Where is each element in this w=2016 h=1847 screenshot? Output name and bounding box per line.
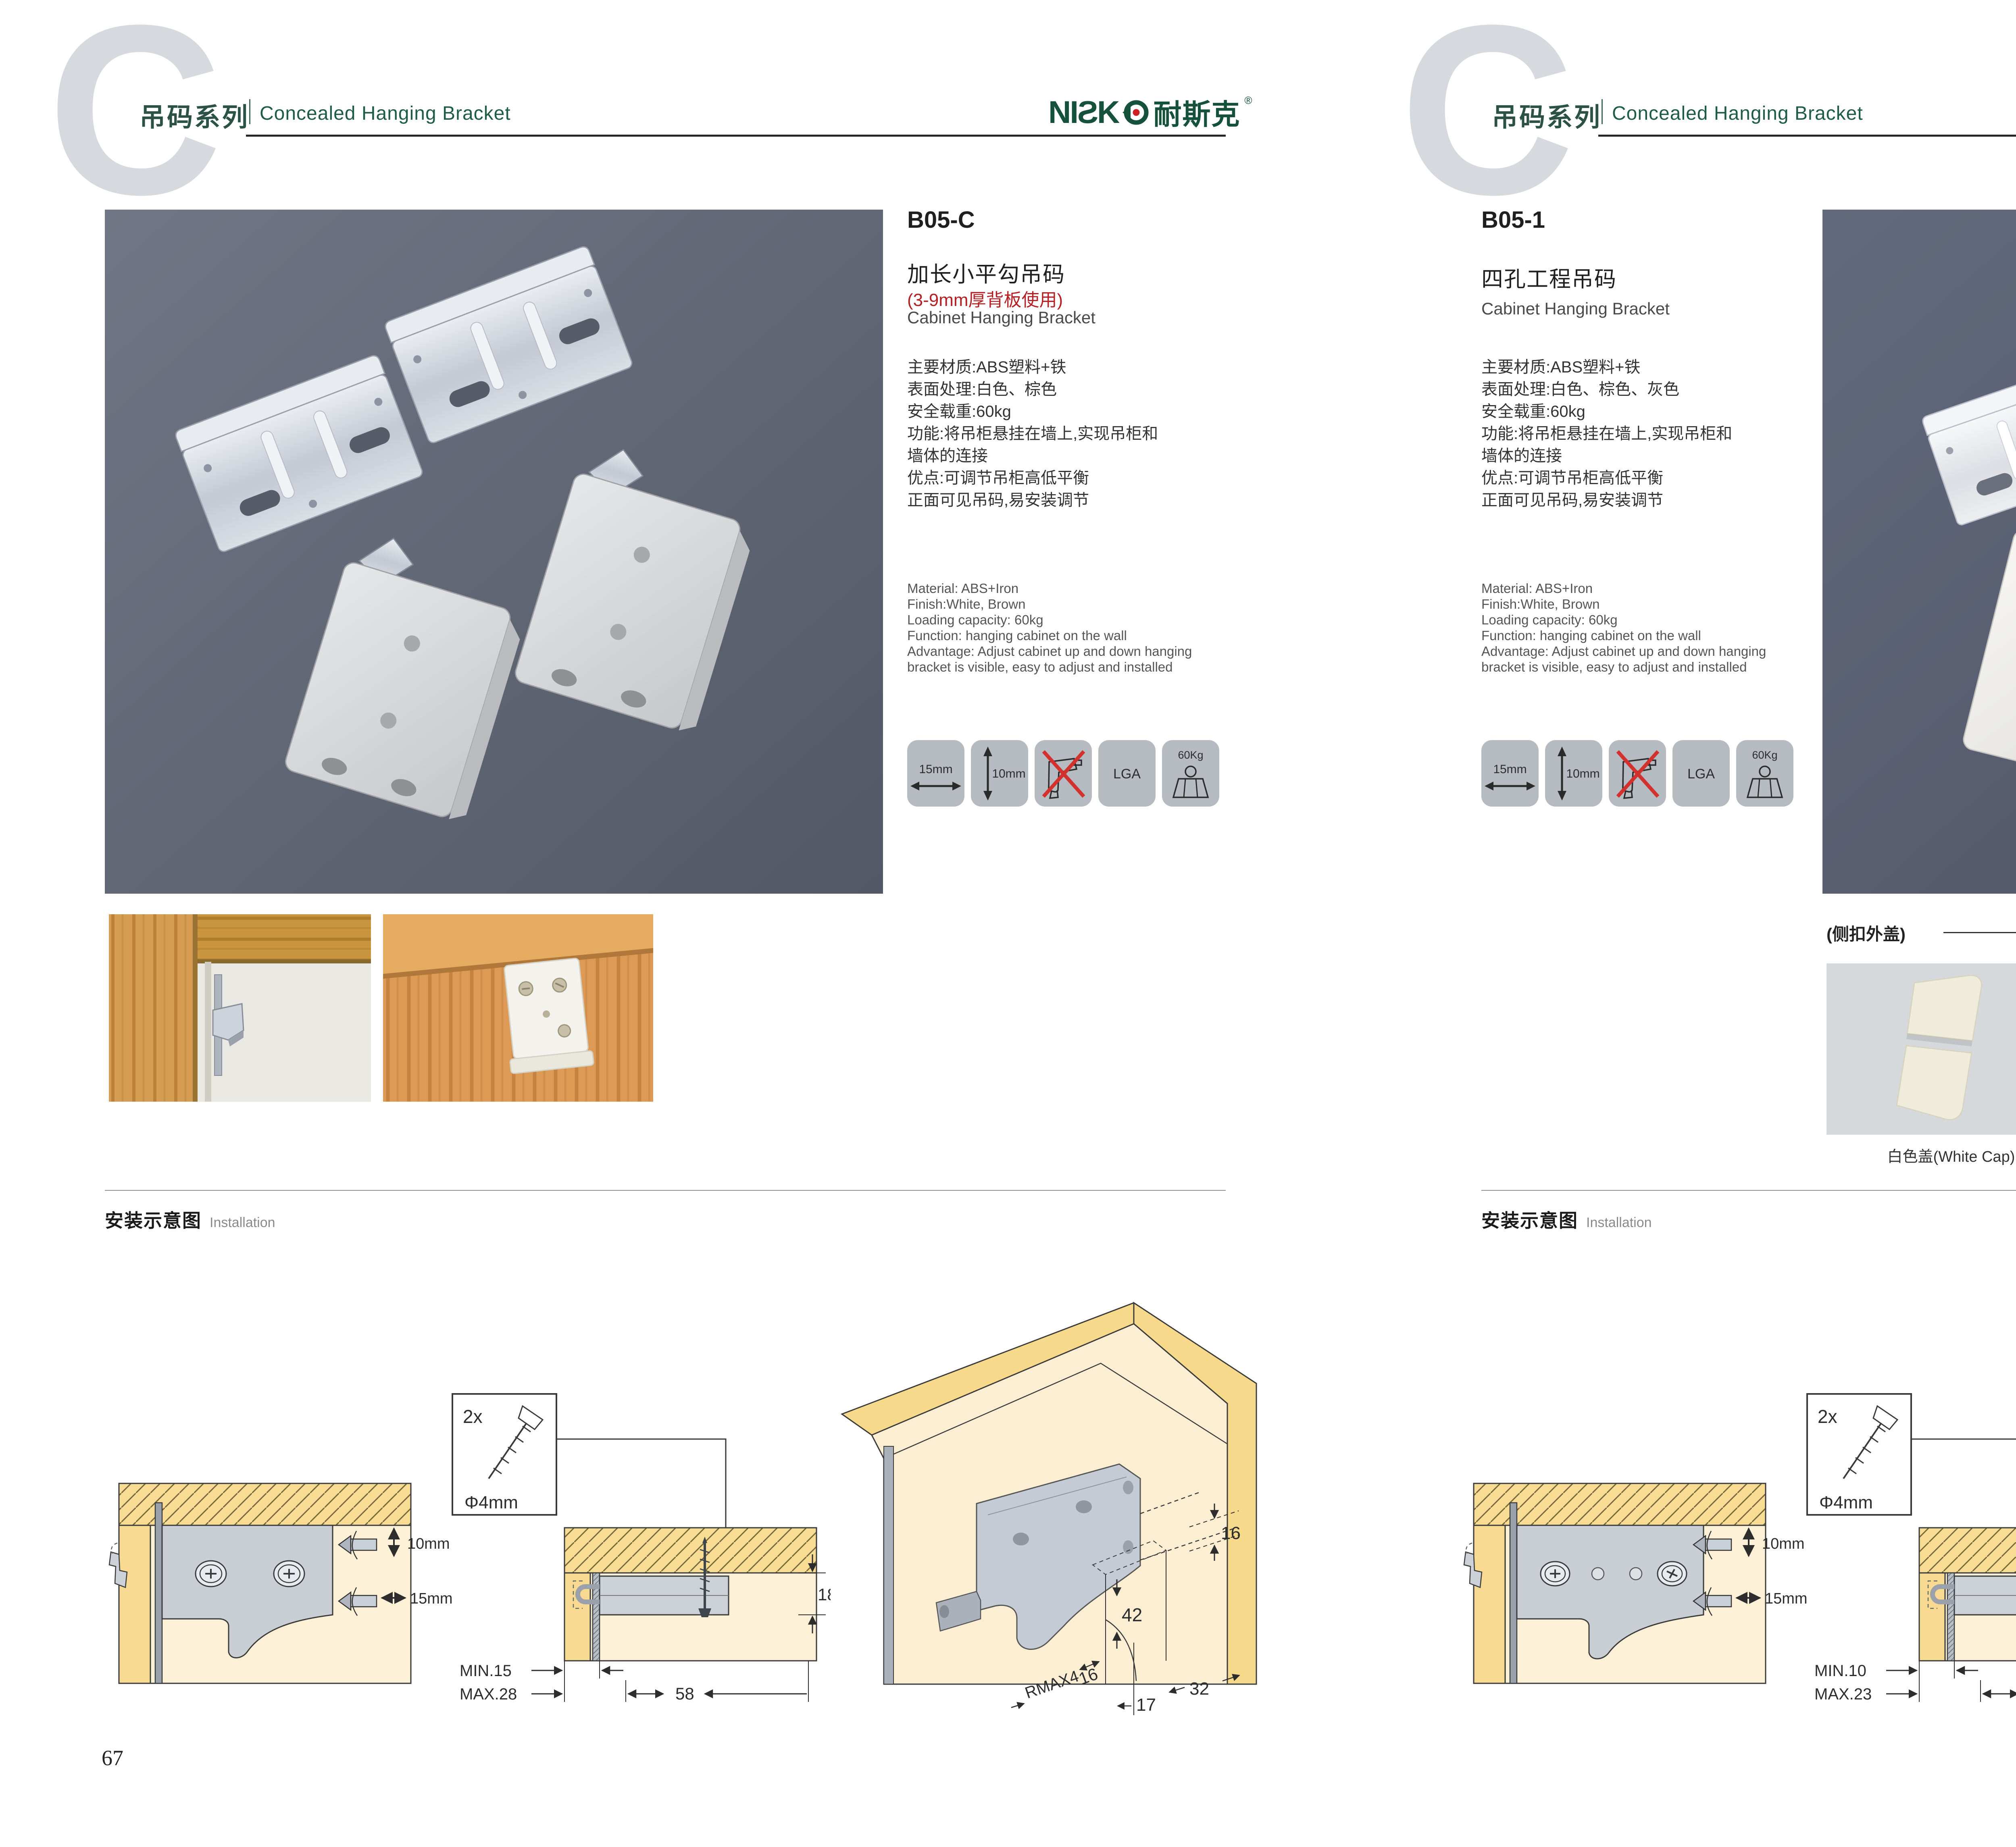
feature-icons: 15mm 10mm LGA 60Kg — [1481, 740, 1793, 807]
specs-english: Material: ABS+Iron Finish:White, Brown L… — [907, 580, 1192, 675]
brand-logo: NIƧK 耐斯克 ® — [1048, 92, 1252, 133]
svg-text:60Kg: 60Kg — [1752, 749, 1777, 761]
install-photo-bracket — [383, 914, 653, 1102]
spec-line: 功能:将吊柜悬挂在墙上,实现吊柜和 — [907, 423, 1158, 445]
installation-heading-zh: 安装示意图 — [1481, 1206, 1578, 1233]
product-title-en: Cabinet Hanging Bracket — [907, 308, 1095, 327]
no-drill-icon — [1609, 740, 1666, 807]
specs-chinese: 主要材质:ABS塑料+铁 表面处理:白色、棕色、灰色 安全载重:60kg 功能:… — [1481, 356, 1732, 512]
spec-line: Loading capacity: 60kg — [907, 612, 1192, 628]
spec-line: bracket is visible, easy to adjust and i… — [907, 659, 1192, 675]
header-divider — [249, 99, 250, 124]
header-rule — [1598, 135, 2016, 137]
diagram-dimension: 2x Φ4mm — [1798, 1383, 2016, 1711]
diagram-perspective: 16 42 RMAX4 16 17 32 — [835, 1278, 1262, 1723]
svg-text:MIN.15: MIN.15 — [460, 1662, 512, 1680]
lga-cert-icon: LGA — [1672, 740, 1730, 807]
diagram-cross-section: 10mm 15mm — [1462, 1435, 1808, 1695]
header-rule — [246, 135, 1226, 137]
svg-text:Φ4mm: Φ4mm — [1819, 1493, 1873, 1512]
spec-line: 主要材质:ABS塑料+铁 — [907, 356, 1158, 379]
spec-line: 表面处理:白色、棕色、灰色 — [1481, 379, 1732, 401]
svg-text:16: 16 — [1221, 1523, 1241, 1543]
spec-line: 正面可见吊码,易安装调节 — [907, 489, 1158, 512]
svg-text:15mm: 15mm — [919, 763, 952, 776]
svg-text:MAX.28: MAX.28 — [460, 1685, 517, 1703]
spec-line: Finish:White, Brown — [1481, 596, 1766, 612]
diagram-dimension: 2x Φ4mm — [444, 1383, 831, 1711]
feature-icons: 15mm 10mm LGA 60Kg — [907, 740, 1219, 807]
spec-line: 表面处理:白色、棕色 — [907, 379, 1158, 401]
no-drill-icon — [1035, 740, 1092, 807]
specs-chinese: 主要材质:ABS塑料+铁 表面处理:白色、棕色 安全载重:60kg 功能:将吊柜… — [907, 356, 1158, 512]
screw-head — [196, 1561, 226, 1587]
series-title-en: Concealed Hanging Bracket — [260, 102, 511, 125]
svg-text:15mm: 15mm — [1493, 763, 1527, 776]
svg-text:10mm: 10mm — [992, 767, 1025, 780]
spec-line: Material: ABS+Iron — [1481, 580, 1766, 596]
svg-text:2x: 2x — [1818, 1406, 1837, 1427]
svg-text:18: 18 — [818, 1585, 831, 1604]
installation-heading-en: Installation — [1586, 1215, 1652, 1231]
spec-line: Advantage: Adjust cabinet up and down ha… — [1481, 643, 1766, 659]
product-subtitle-red: (3-9mm厚背板使用) — [907, 285, 1063, 311]
svg-text:MIN.10: MIN.10 — [1814, 1662, 1866, 1680]
panel-width-icon: 15mm — [1481, 740, 1539, 807]
panel-width-icon: 15mm — [907, 740, 964, 807]
installation-heading-zh: 安装示意图 — [105, 1206, 202, 1233]
model-number: B05-1 — [1481, 206, 1545, 233]
load-capacity-icon: 60Kg — [1736, 740, 1793, 807]
product-title-zh: 加长小平勾吊码 — [907, 256, 1065, 288]
logo-latin-text: NIƧK — [1048, 94, 1118, 131]
caps-heading: (侧扣外盖) — [1826, 921, 1906, 945]
spec-line: Function: hanging cabinet on the wall — [907, 628, 1192, 643]
cap-swatch-white — [1826, 963, 2016, 1135]
screw-head — [1658, 1562, 1687, 1586]
logo-target-icon — [1123, 99, 1149, 126]
installation-rule — [1481, 1190, 2016, 1191]
installation-heading: 安装示意图 Installation — [105, 1206, 275, 1233]
spec-line: bracket is visible, easy to adjust and i… — [1481, 659, 1766, 675]
installation-heading-en: Installation — [210, 1215, 275, 1231]
installation-heading: 安装示意图 Installation — [1481, 1206, 1652, 1233]
load-capacity-icon: 60Kg — [1162, 740, 1219, 807]
install-photo-hook — [109, 914, 371, 1102]
spec-line: 功能:将吊柜悬挂在墙上,实现吊柜和 — [1481, 423, 1732, 445]
spec-line: 墙体的连接 — [1481, 445, 1732, 467]
installation-rule — [105, 1190, 1226, 1191]
svg-text:LGA: LGA — [1687, 766, 1715, 782]
caps-heading-rule — [1943, 932, 2016, 933]
screw-head — [274, 1561, 304, 1587]
svg-text:Φ4mm: Φ4mm — [464, 1493, 518, 1512]
panel-height-icon: 10mm — [971, 740, 1028, 807]
svg-text:32: 32 — [1189, 1679, 1209, 1699]
registered-mark: ® — [1244, 94, 1252, 107]
specs-english: Material: ABS+Iron Finish:White, Brown L… — [1481, 580, 1766, 675]
spec-line: 安全载重:60kg — [1481, 401, 1732, 423]
catalog-spread: C 吊码系列 Concealed Hanging Bracket NIƧK 耐斯… — [0, 0, 2016, 1847]
logo-chinese-text: 耐斯克 — [1153, 92, 1240, 133]
spec-line: 安全载重:60kg — [907, 401, 1158, 423]
spec-line: 优点:可调节吊柜高低平衡 — [1481, 467, 1732, 489]
svg-text:MAX.23: MAX.23 — [1814, 1685, 1872, 1703]
svg-text:60Kg: 60Kg — [1178, 749, 1203, 761]
series-title-zh: 吊码系列 — [140, 97, 249, 134]
cap-label: 白色盖(White Cap) — [1826, 1144, 2016, 1166]
spec-line: Finish:White, Brown — [907, 596, 1192, 612]
svg-text:10mm: 10mm — [1566, 767, 1599, 780]
svg-text:2x: 2x — [463, 1406, 483, 1427]
screw-head — [1541, 1562, 1570, 1586]
product-title-en: Cabinet Hanging Bracket — [1481, 299, 1670, 318]
spec-line: 墙体的连接 — [907, 445, 1158, 467]
diagram-cross-section: 10mm 15mm — [107, 1435, 454, 1695]
svg-text:17: 17 — [1136, 1695, 1156, 1715]
svg-text:58: 58 — [675, 1684, 694, 1703]
series-title-en: Concealed Hanging Bracket — [1612, 102, 1863, 125]
page-number: 67 — [102, 1745, 123, 1770]
spec-line: 正面可见吊码,易安装调节 — [1481, 489, 1732, 512]
svg-text:42: 42 — [1122, 1604, 1142, 1625]
spec-line: 优点:可调节吊柜高低平衡 — [907, 467, 1158, 489]
product-title-zh: 四孔工程吊码 — [1481, 261, 1617, 293]
header-divider — [1602, 99, 1603, 124]
panel-height-icon: 10mm — [1545, 740, 1602, 807]
spec-line: Loading capacity: 60kg — [1481, 612, 1766, 628]
spec-line: Material: ABS+Iron — [907, 580, 1192, 596]
spec-line: Function: hanging cabinet on the wall — [1481, 628, 1766, 643]
spec-line: Advantage: Adjust cabinet up and down ha… — [907, 643, 1192, 659]
product-photo-b051 — [1822, 210, 2016, 894]
product-photo-b05c — [105, 210, 883, 894]
model-number: B05-C — [907, 206, 975, 233]
svg-text:LGA: LGA — [1113, 766, 1141, 782]
spec-line: 主要材质:ABS塑料+铁 — [1481, 356, 1732, 379]
series-title-zh: 吊码系列 — [1492, 97, 1602, 134]
lga-cert-icon: LGA — [1098, 740, 1156, 807]
